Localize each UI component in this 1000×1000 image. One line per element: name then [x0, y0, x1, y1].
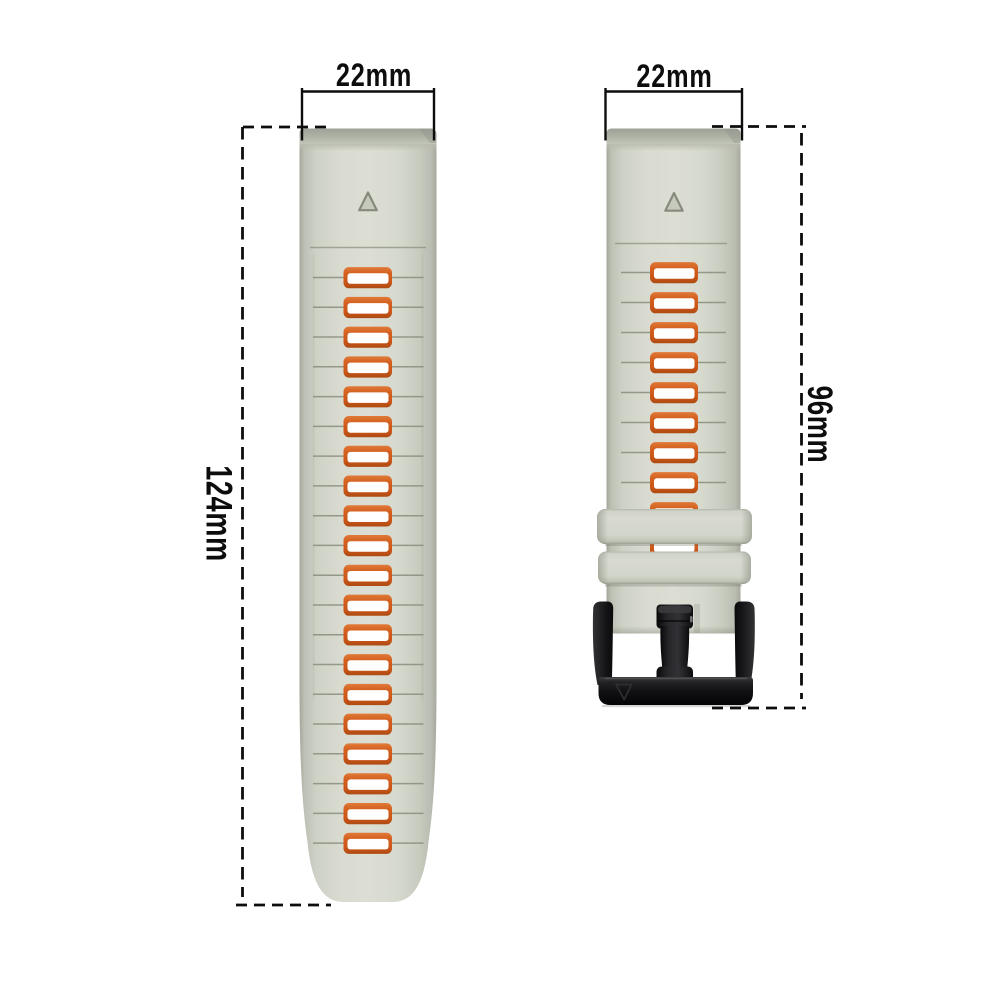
svg-text:124mm: 124mm — [198, 465, 240, 562]
svg-text:22mm: 22mm — [636, 59, 712, 95]
svg-text:96mm: 96mm — [800, 386, 840, 464]
svg-text:22mm: 22mm — [336, 58, 412, 94]
